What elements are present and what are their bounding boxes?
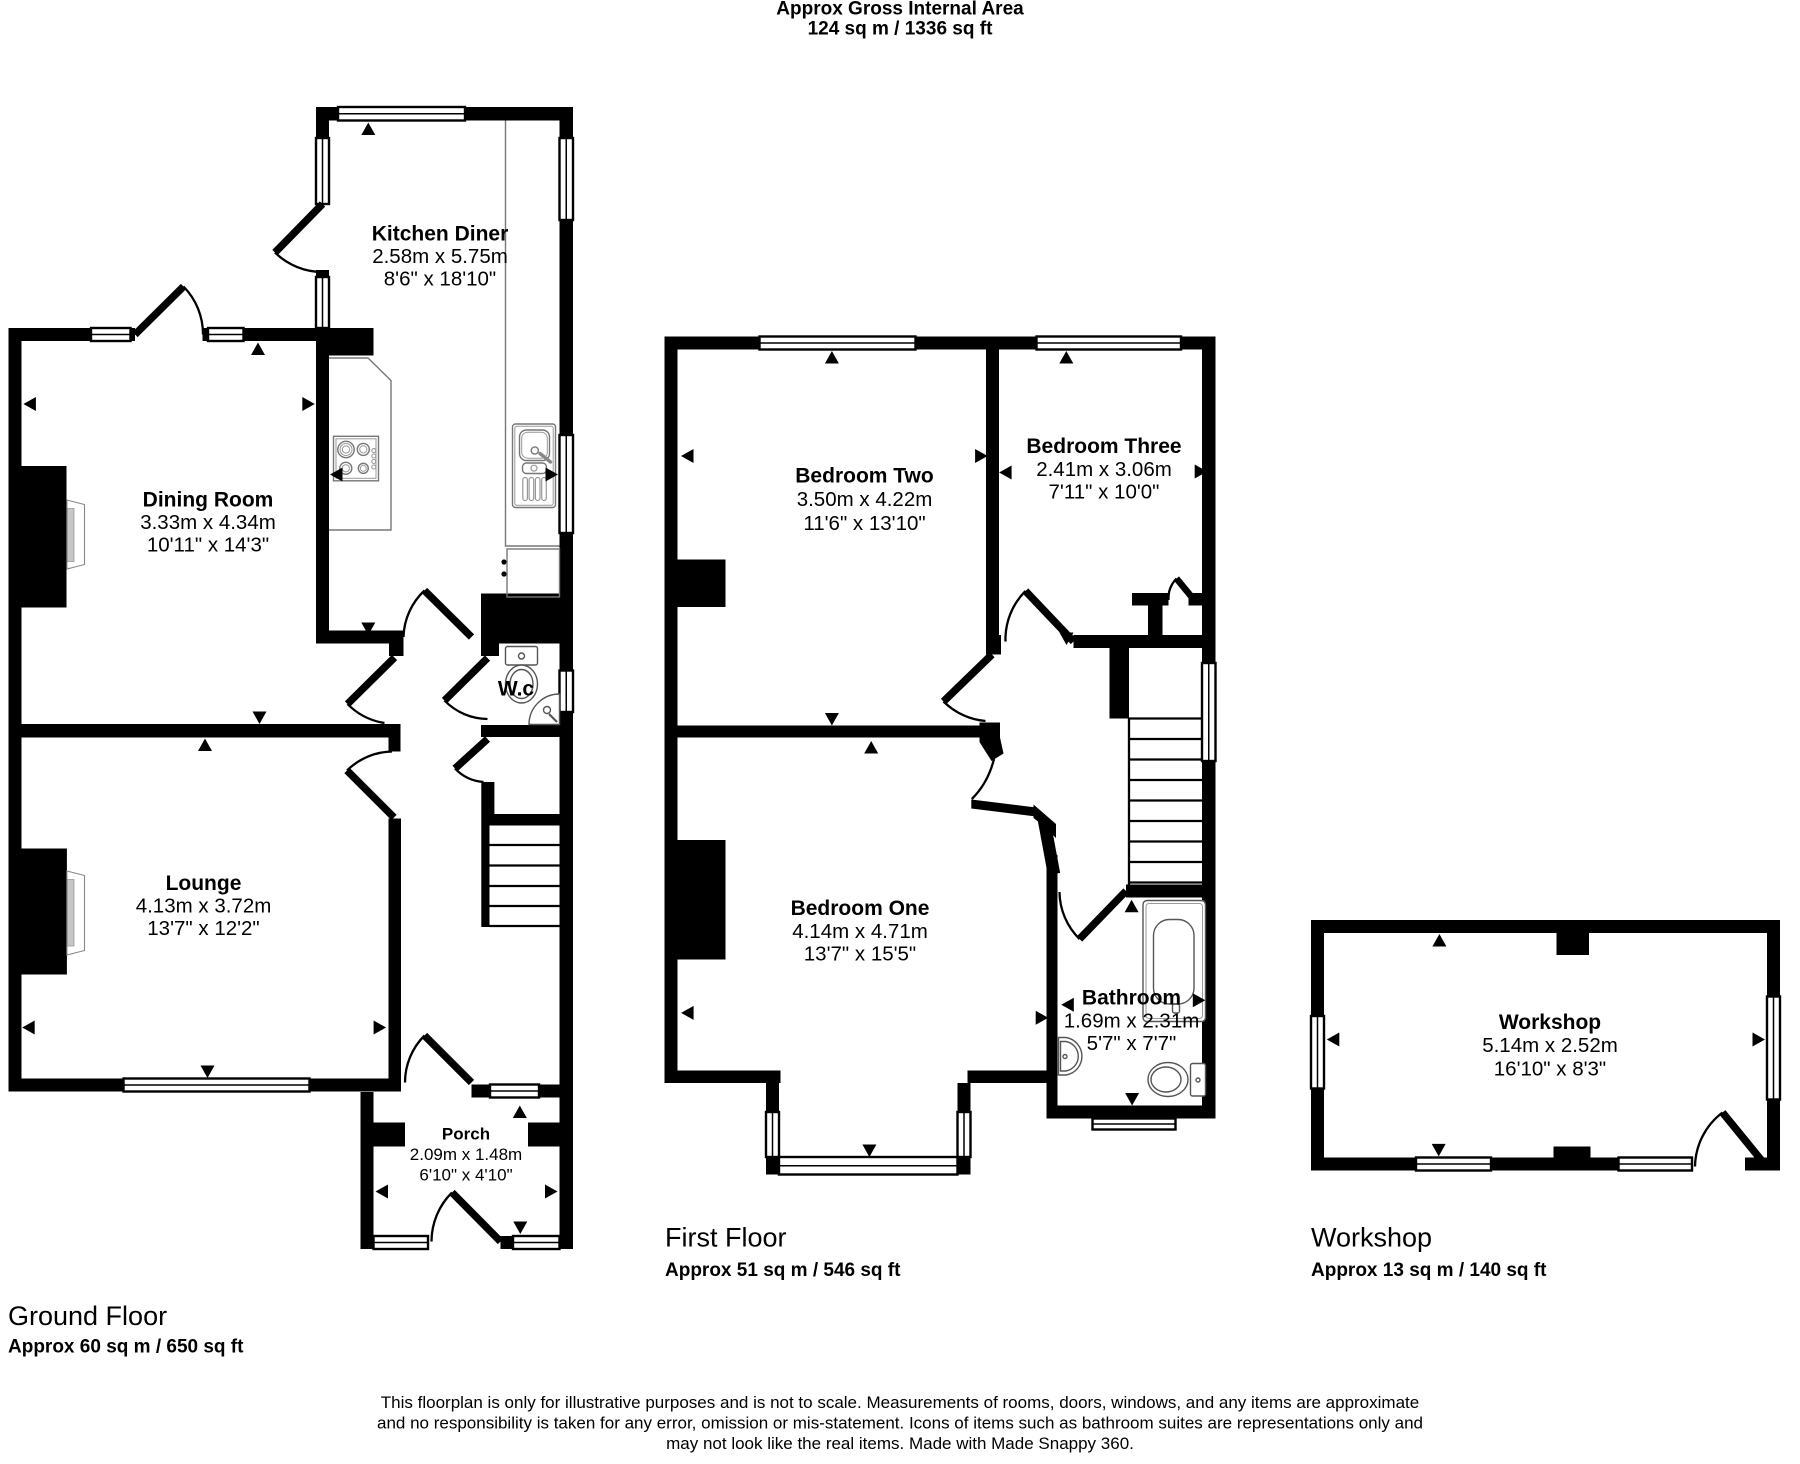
svg-text:Bedroom Three: Bedroom Three [1026,435,1181,458]
svg-text:may not look like the real ite: may not look like the real items. Made w… [666,1434,1134,1453]
svg-text:13'7" x 15'5": 13'7" x 15'5" [804,943,916,966]
svg-text:and no responsibility is taken: and no responsibility is taken for any e… [377,1414,1423,1433]
svg-text:Approx 51 sq m / 546 sq ft: Approx 51 sq m / 546 sq ft [665,1260,901,1281]
svg-text:Approx 13 sq m / 140 sq ft: Approx 13 sq m / 140 sq ft [1311,1260,1547,1281]
svg-text:3.33m x 4.34m: 3.33m x 4.34m [140,511,276,534]
svg-text:W.c: W.c [498,678,534,701]
svg-text:Kitchen Diner: Kitchen Diner [372,223,509,246]
svg-text:3.50m x 4.22m: 3.50m x 4.22m [797,488,933,511]
svg-text:7'11" x 10'0": 7'11" x 10'0" [1049,481,1160,504]
svg-text:11'6" x 13'10": 11'6" x 13'10" [803,512,925,535]
svg-text:13'7" x 12'2": 13'7" x 12'2" [147,917,259,940]
svg-text:This floorplan is only for ill: This floorplan is only for illustrative … [381,1393,1419,1412]
svg-text:Workshop: Workshop [1499,1011,1601,1034]
svg-text:5.14m x 2.52m: 5.14m x 2.52m [1482,1034,1618,1057]
svg-text:Bathroom: Bathroom [1082,987,1181,1010]
svg-text:Approx Gross Internal Area: Approx Gross Internal Area [776,0,1024,20]
svg-text:8'6" x 18'10": 8'6" x 18'10" [384,268,496,291]
svg-text:Approx 60 sq m / 650 sq ft: Approx 60 sq m / 650 sq ft [8,1337,244,1358]
svg-text:16'10" x 8'3": 16'10" x 8'3" [1494,1058,1606,1081]
svg-text:First Floor: First Floor [665,1223,787,1253]
svg-text:Bedroom Two: Bedroom Two [795,465,933,488]
svg-text:Lounge: Lounge [166,872,242,895]
svg-text:2.58m x 5.75m: 2.58m x 5.75m [372,245,508,268]
svg-text:2.09m x 1.48m: 2.09m x 1.48m [410,1145,522,1164]
svg-text:124 sq m / 1336 sq ft: 124 sq m / 1336 sq ft [808,19,993,40]
svg-text:2.41m x 3.06m: 2.41m x 3.06m [1036,458,1172,481]
svg-text:Workshop: Workshop [1311,1223,1432,1253]
svg-text:4.13m x 3.72m: 4.13m x 3.72m [136,895,272,918]
svg-text:4.14m x 4.71m: 4.14m x 4.71m [792,920,928,943]
svg-text:Ground Floor: Ground Floor [8,1301,167,1331]
svg-text:Porch: Porch [442,1125,490,1144]
svg-text:6'10" x 4'10": 6'10" x 4'10" [419,1166,512,1185]
svg-text:1.69m x 2.31m: 1.69m x 2.31m [1064,1010,1200,1033]
svg-text:Bedroom One: Bedroom One [791,897,930,920]
svg-text:5'7" x 7'7": 5'7" x 7'7" [1087,1032,1177,1055]
svg-text:Dining Room: Dining Room [143,489,274,512]
svg-text:10'11" x 14'3": 10'11" x 14'3" [147,534,269,557]
